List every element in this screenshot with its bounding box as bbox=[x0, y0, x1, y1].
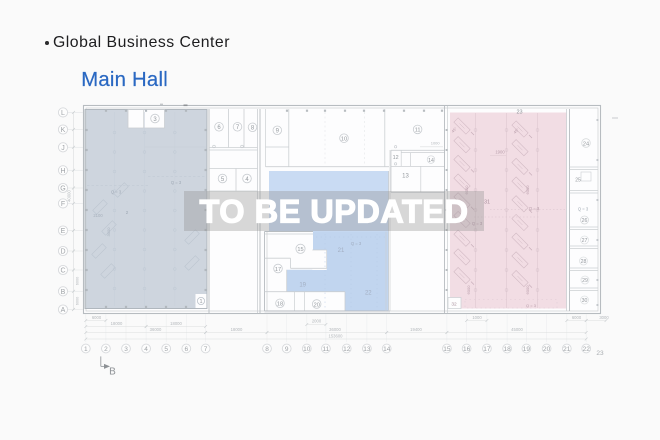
svg-text:22: 22 bbox=[583, 346, 591, 353]
svg-text:6000: 6000 bbox=[92, 315, 102, 320]
svg-text:2: 2 bbox=[104, 346, 108, 353]
svg-text:11: 11 bbox=[415, 128, 421, 134]
svg-text:1: 1 bbox=[199, 299, 202, 305]
svg-text:31: 31 bbox=[484, 200, 490, 206]
svg-text:27: 27 bbox=[582, 238, 588, 244]
svg-text:3000: 3000 bbox=[106, 227, 111, 237]
svg-text:5: 5 bbox=[164, 346, 168, 353]
svg-text:F: F bbox=[61, 201, 65, 208]
svg-text:153600: 153600 bbox=[329, 333, 344, 338]
svg-text:8: 8 bbox=[265, 346, 269, 353]
svg-text:D: D bbox=[60, 249, 65, 256]
svg-text:3: 3 bbox=[124, 346, 128, 353]
svg-text:36000: 36000 bbox=[150, 327, 162, 332]
svg-text:3000: 3000 bbox=[599, 315, 609, 320]
svg-text:45000: 45000 bbox=[511, 327, 523, 332]
svg-text:1900: 1900 bbox=[495, 150, 505, 155]
svg-text:16: 16 bbox=[463, 346, 471, 353]
svg-text:6000: 6000 bbox=[525, 185, 530, 195]
svg-text:7: 7 bbox=[204, 346, 208, 353]
svg-text:2000: 2000 bbox=[312, 318, 322, 323]
svg-text:24: 24 bbox=[583, 141, 589, 147]
svg-text:10: 10 bbox=[303, 346, 311, 353]
svg-text:6000: 6000 bbox=[76, 277, 80, 285]
svg-text:36000: 36000 bbox=[329, 327, 341, 332]
svg-text:6000: 6000 bbox=[525, 285, 530, 295]
svg-text:40000: 40000 bbox=[67, 190, 72, 202]
svg-text:25: 25 bbox=[575, 178, 581, 184]
svg-text:15: 15 bbox=[443, 346, 451, 353]
svg-text:23: 23 bbox=[516, 110, 522, 116]
svg-text:B: B bbox=[61, 289, 66, 296]
svg-text:2100: 2100 bbox=[93, 213, 103, 218]
svg-text:14: 14 bbox=[383, 346, 391, 353]
svg-text:H: H bbox=[60, 168, 65, 175]
svg-text:6000: 6000 bbox=[466, 285, 471, 295]
svg-text:23: 23 bbox=[596, 350, 604, 357]
svg-text:17: 17 bbox=[275, 267, 281, 273]
svg-text:11: 11 bbox=[323, 346, 330, 353]
svg-text:18000: 18000 bbox=[231, 327, 243, 332]
svg-text:19400: 19400 bbox=[410, 327, 422, 332]
svg-text:21: 21 bbox=[338, 248, 345, 254]
svg-text:20: 20 bbox=[543, 346, 551, 353]
svg-text:9: 9 bbox=[285, 346, 289, 353]
svg-text:1: 1 bbox=[84, 346, 88, 353]
svg-text:14: 14 bbox=[428, 158, 434, 164]
svg-text:Q = 3: Q = 3 bbox=[526, 303, 537, 308]
svg-text:17: 17 bbox=[483, 346, 491, 353]
svg-text:1000: 1000 bbox=[472, 315, 482, 320]
svg-text:C: C bbox=[60, 268, 65, 275]
svg-text:A: A bbox=[61, 307, 66, 314]
svg-text:B: B bbox=[109, 367, 116, 378]
svg-text:10: 10 bbox=[341, 137, 347, 143]
svg-text:22: 22 bbox=[365, 291, 372, 297]
svg-text:18000: 18000 bbox=[111, 321, 123, 326]
svg-text:Q = 3: Q = 3 bbox=[351, 241, 362, 246]
svg-text:28: 28 bbox=[581, 259, 587, 265]
svg-text:Q = 3: Q = 3 bbox=[578, 207, 589, 212]
svg-text:Q = 3: Q = 3 bbox=[111, 190, 122, 195]
svg-text:J: J bbox=[61, 145, 65, 152]
svg-text:Q = 3: Q = 3 bbox=[529, 206, 540, 211]
svg-text:18: 18 bbox=[277, 302, 283, 308]
svg-text:18000: 18000 bbox=[170, 321, 182, 326]
svg-text:19: 19 bbox=[523, 346, 531, 353]
svg-text:E: E bbox=[61, 228, 66, 235]
svg-text:12: 12 bbox=[393, 155, 399, 161]
svg-text:32: 32 bbox=[451, 302, 457, 308]
svg-text:15: 15 bbox=[297, 247, 303, 253]
svg-text:L: L bbox=[61, 110, 65, 117]
svg-text:6000: 6000 bbox=[572, 315, 582, 320]
svg-text:K: K bbox=[61, 127, 66, 134]
svg-text:29: 29 bbox=[582, 278, 588, 284]
svg-text:13: 13 bbox=[402, 174, 409, 180]
svg-text:18: 18 bbox=[503, 346, 511, 353]
svg-text:20: 20 bbox=[314, 302, 320, 308]
svg-text:6000: 6000 bbox=[76, 297, 80, 305]
svg-text:19: 19 bbox=[299, 283, 306, 289]
svg-text:1000: 1000 bbox=[431, 140, 441, 145]
svg-text:26: 26 bbox=[582, 218, 588, 224]
svg-text:Q = 3: Q = 3 bbox=[171, 180, 182, 185]
svg-text:12: 12 bbox=[343, 346, 351, 353]
svg-text:G: G bbox=[60, 186, 65, 193]
svg-text:13: 13 bbox=[363, 346, 371, 353]
svg-text:TO BE UPDATED: TO BE UPDATED bbox=[200, 194, 469, 230]
svg-text:4: 4 bbox=[144, 346, 148, 353]
svg-text:6: 6 bbox=[184, 346, 188, 353]
svg-text:30: 30 bbox=[582, 298, 588, 304]
svg-text:21: 21 bbox=[563, 346, 571, 353]
